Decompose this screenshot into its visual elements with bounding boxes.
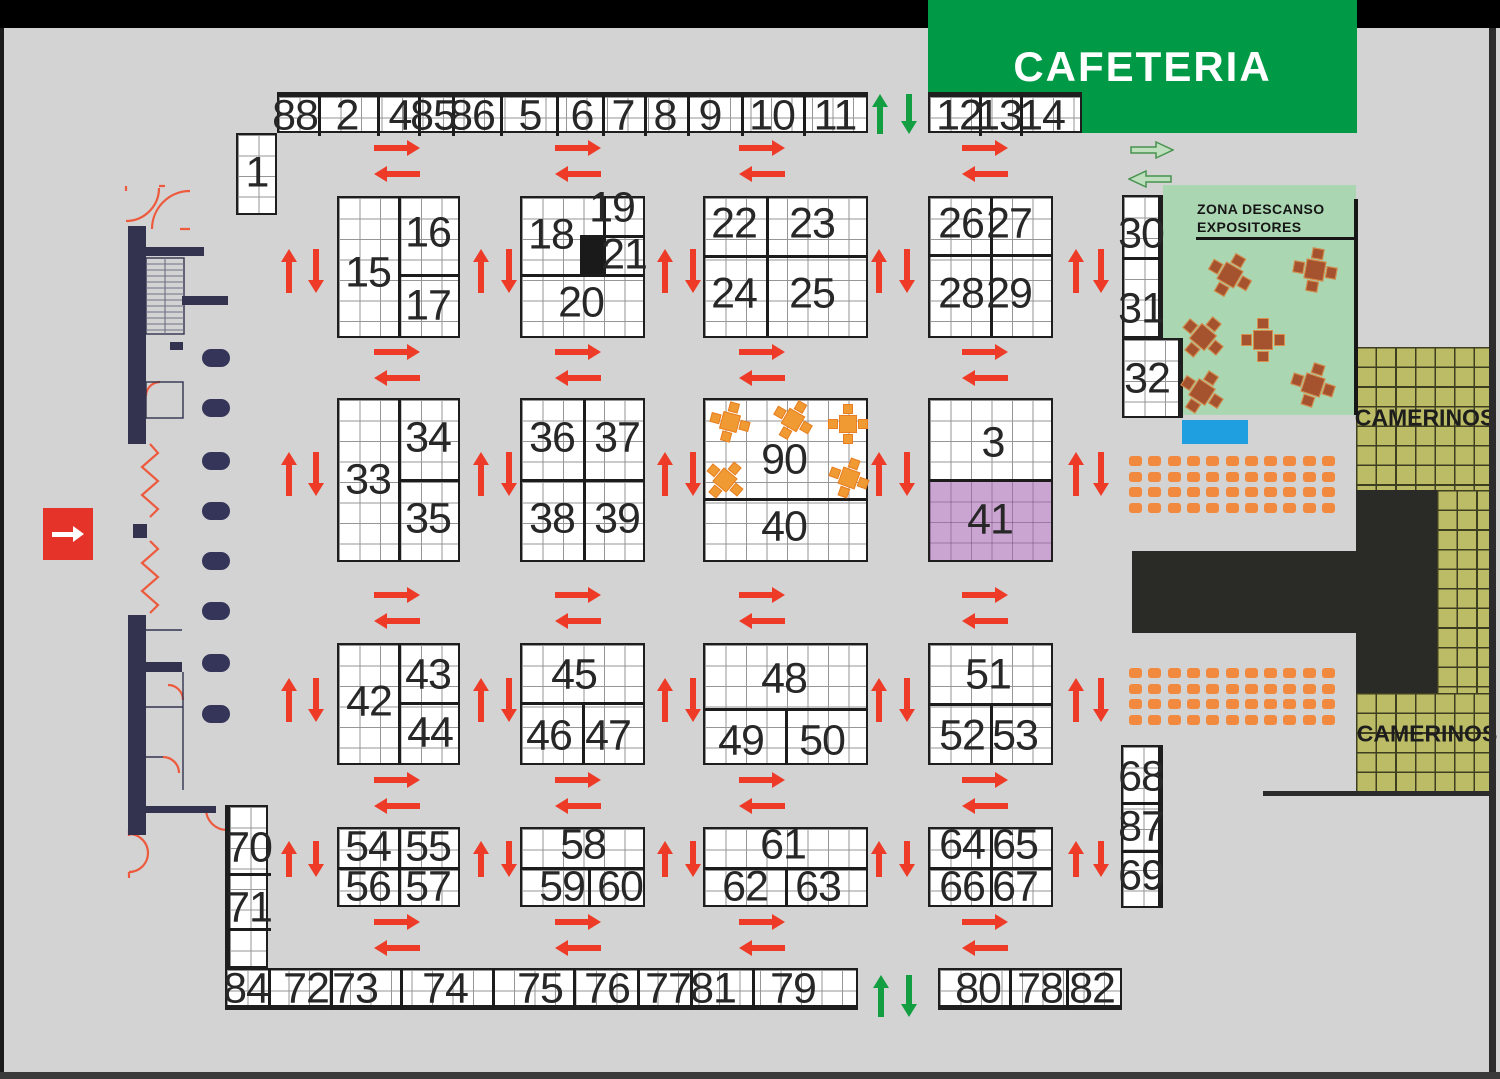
arrow-shaft [690,841,696,865]
audience-seat [1226,456,1239,466]
strip-70-71-divider [228,873,271,876]
booth-90-table-icon [828,404,868,444]
table-chair [843,404,853,414]
booth-label-36: 36 [529,417,575,460]
booth-label-25: 25 [789,273,835,316]
arrow-head [407,344,420,360]
booth-label-84: 84 [223,968,269,1011]
arrow-head [1068,841,1084,854]
aisle-arrow-down-icon [685,452,702,496]
aisle-arrow-down-icon [308,841,325,877]
arrow-head [407,587,420,603]
booth-label-71: 71 [226,887,272,930]
aisle-arrow-right-icon [739,772,785,789]
audience-seat [1264,668,1277,678]
wall-segment-1 [146,247,204,256]
audience-seat [1264,487,1277,497]
left-border [0,28,4,1079]
booth-label-86: 86 [449,95,495,138]
block-15-16-17-divider [398,274,460,277]
aisle-arrow-down-icon [308,678,325,722]
arrow-head [739,940,752,956]
arrow-head [995,140,1008,156]
booth-label-38: 38 [529,498,575,541]
audience-seat [1206,472,1219,482]
booth-label-22: 22 [711,203,757,246]
arrow-shaft [751,618,785,624]
booth-label-67: 67 [992,866,1038,909]
booth-label-51: 51 [965,654,1011,697]
arrow-shaft [1073,690,1079,722]
audience-seat [1264,684,1277,694]
block-15-16-17-divider [398,196,401,338]
arrow-head [1068,249,1084,262]
arrow-shaft [374,777,408,783]
arrow-shaft [904,841,910,865]
audience-seat [1264,699,1277,709]
audience-seat [1322,487,1335,497]
arrow-shaft [567,171,601,177]
arrow-head [281,678,297,691]
arrow-shaft [878,987,884,1017]
aisle-arrow-left-icon [962,166,1008,183]
aisle-arrow-up-icon [871,249,888,293]
structural-column-1 [202,399,230,417]
booth-label-52: 52 [939,715,985,758]
booth-label-53: 53 [992,715,1038,758]
arrow-shaft [555,349,589,355]
arrow-shaft [567,375,601,381]
strip-70-71: 7071 [225,805,268,968]
aisle-arrow-down-icon [899,678,916,722]
aisle-arrow-left-icon [962,940,1008,957]
aisle-arrow-right-icon [374,587,420,604]
booth-label-15: 15 [345,252,391,295]
audience-seat [1283,472,1296,482]
arrow-head [657,841,673,854]
booth-label-21: 21 [601,234,647,277]
strip-top-right: 121314 [928,92,1082,133]
aisle-arrow-down-icon [685,249,702,293]
audience-seat [1148,503,1161,513]
arrow-shaft [506,249,512,281]
booth-label-2: 2 [336,95,359,138]
booth-label-35: 35 [405,498,451,541]
table-chair [720,430,733,443]
strip-bottom-left-divider [752,968,755,1010]
strip-30-31: 3031 [1122,195,1163,338]
aisle-arrow-left-icon [374,940,420,957]
arrow-head [962,940,975,956]
arrow-shaft [751,171,785,177]
arrow-head [374,613,387,629]
aisle-arrow-up-icon [1068,452,1085,496]
cafeteria-flow-arrow-left-icon [1128,169,1172,189]
booth-label-68: 68 [1118,756,1164,799]
wall-segment-7 [146,806,216,813]
entrance-arrow-icon [52,526,84,543]
arrow-head [872,94,888,107]
arrow-head [1093,864,1109,877]
audience-seat [1187,699,1200,709]
audience-seat [1283,715,1296,725]
strip-bottom-left-divider [637,968,640,1010]
arrow-shaft [1098,678,1104,710]
rest-area-table-icon [1241,318,1285,362]
bottom-border [0,1072,1500,1079]
booth-label-82: 82 [1069,968,1115,1011]
arrow-head [899,864,915,877]
aisle-arrow-right-icon [962,344,1008,361]
strip-bottom-left-divider [400,968,403,1010]
arrow-head [473,841,489,854]
arrow-head [407,140,420,156]
arrow-head [374,166,387,182]
audience-seat [1245,699,1258,709]
strip-top-left-divider [500,95,503,136]
arrow-head [962,798,975,814]
audience-seat [1148,456,1161,466]
arrow-shaft [1098,841,1104,865]
strip-top-left-divider [377,95,380,136]
table-chair [843,434,853,444]
block-33-34-35-divider [398,479,460,482]
block-18-19-20-21-fill-0 [580,235,603,274]
arrow-shaft [751,945,785,951]
audience-seat [1129,503,1142,513]
aisle-arrow-up-icon [657,452,674,496]
arrow-head [501,864,517,877]
arrow-shaft [751,803,785,809]
strip-top-left-divider [602,95,605,136]
audience-seat [1322,472,1335,482]
arrow-head [899,280,915,293]
arrow-head [555,166,568,182]
block-26-27-28-29-divider [928,254,1053,257]
audience-seat [1322,503,1335,513]
aisle-arrow-up-icon [871,841,888,877]
table-chair [727,401,740,414]
aisle-arrow-left-icon [555,798,601,815]
audience-seat [1245,684,1258,694]
table-chair [1311,247,1324,260]
arrow-shaft [1073,853,1079,877]
table-top [1253,330,1272,349]
audience-seat [1264,456,1277,466]
arrow-head [555,798,568,814]
aisle-arrow-left-icon [555,613,601,630]
booth-label-14: 14 [1019,95,1065,138]
aisle-arrow-up-icon [281,249,298,293]
booth-label-87: 87 [1118,806,1164,849]
table-chair [1274,334,1285,345]
block-22-23-24-25-divider [766,196,769,338]
arrow-shaft [286,690,292,722]
aisle-arrow-up-icon [871,678,888,722]
table-top [839,415,857,433]
arrow-shaft [877,106,883,134]
booth-label-44: 44 [407,712,453,755]
audience-seat [1303,472,1316,482]
audience-seat [1129,668,1142,678]
arrow-shaft [739,145,773,151]
audience-seat [1245,472,1258,482]
audience-seat [1168,668,1181,678]
arrow-shaft [690,678,696,710]
right-border [1489,28,1496,1079]
block-61-62-63: 616263 [703,827,868,907]
aisle-arrow-up-icon [657,249,674,293]
booth-label-43: 43 [405,654,451,697]
audience-seat [1264,715,1277,725]
booth-label-80: 80 [955,968,1001,1011]
aisle-arrow-right-icon [555,772,601,789]
audience-seat [1168,472,1181,482]
block-58-59-60: 585960 [520,827,645,907]
audience-seat [1148,684,1161,694]
arrow-head [588,140,601,156]
booth-label-59: 59 [539,866,585,909]
audience-seat [1264,503,1277,513]
audience-seat [1226,699,1239,709]
aisle-arrow-down-icon [501,678,518,722]
audience-seat [1187,472,1200,482]
arrow-head [374,798,387,814]
audience-seat [1129,684,1142,694]
arrow-shaft [974,803,1008,809]
audience-seat [1226,715,1239,725]
booth-label-63: 63 [795,866,841,909]
booth-label-31: 31 [1118,288,1164,331]
structural-column-2 [202,452,230,470]
arrow-shaft [567,945,601,951]
arrow-shaft [962,145,996,151]
aisle-arrow-left-icon [962,798,1008,815]
wall-segment-5 [146,662,182,672]
aisle-arrow-right-icon [555,140,601,157]
audience-seat [1245,715,1258,725]
audience-seat [1187,456,1200,466]
table-chair [1306,279,1319,292]
arrow-head [588,772,601,788]
booth-label-81: 81 [690,968,736,1011]
arrow-head [962,613,975,629]
booth-label-64: 64 [939,824,985,867]
arrow-shaft [374,592,408,598]
arrow-head [281,841,297,854]
structural-column-5 [202,602,230,620]
aisle-arrow-left-icon [739,940,785,957]
block-45-46-47: 454647 [520,643,645,765]
arrow-head [901,1004,917,1017]
block-42-43-44-divider [398,702,460,705]
arrow-shaft [962,919,996,925]
booth-label-42: 42 [346,681,392,724]
aisle-arrow-down-icon [1093,678,1110,722]
arrow-head [739,370,752,386]
structural-column-6 [202,654,230,672]
audience-seat [1168,503,1181,513]
booth-label-34: 34 [405,417,451,460]
arrow-head [1068,678,1084,691]
audience-seat [1129,472,1142,482]
block-48-49-50: 484950 [703,643,868,765]
block-33-34-35: 333435 [337,398,460,562]
booth-1: 1 [236,133,277,215]
aisle-arrow-down-icon [685,841,702,877]
audience-seat [1129,699,1142,709]
arrow-shaft [904,249,910,281]
booth-label-69: 69 [1118,855,1164,898]
booth-label-40: 40 [761,506,807,549]
aisle-arrow-left-icon [739,166,785,183]
aisle-arrow-right-icon [374,140,420,157]
arrow-head [772,140,785,156]
arrow-head [374,370,387,386]
booth-label-66: 66 [939,866,985,909]
audience-seat [1187,668,1200,678]
arrow-head [407,772,420,788]
arrow-shaft [1098,249,1104,281]
arrow-head [374,940,387,956]
exit-arrow-down-icon [901,94,918,134]
floor-plan-canvas: CAFETERIA CAMERINOS CAMERINOS ZONA DESCA… [0,0,1500,1079]
booth-label-60: 60 [597,866,643,909]
arrow-head [657,678,673,691]
block-61-62-63-divider [785,867,788,907]
booth-label-65: 65 [992,824,1038,867]
arrow-shaft [313,678,319,710]
audience-seat [1322,456,1335,466]
booth-label-78: 78 [1017,968,1063,1011]
audience-seat [1283,668,1296,678]
aisle-arrow-right-icon [739,587,785,604]
arrow-shaft [962,592,996,598]
arrow-head [995,914,1008,930]
booth-label-17: 17 [405,285,451,328]
audience-seat [1206,715,1219,725]
audience-seat [1129,715,1142,725]
aisle-arrow-right-icon [962,772,1008,789]
arrow-head [962,370,975,386]
aisle-arrow-down-icon [501,249,518,293]
structural-column-7 [202,705,230,723]
aisle-arrow-left-icon [739,370,785,387]
audience-seat [1168,456,1181,466]
booth-label-58: 58 [560,824,606,867]
audience-seat [1283,699,1296,709]
block-3-41: 341 [928,398,1053,562]
aisle-arrow-down-icon [308,452,325,496]
block-36-37-38-39-divider [520,479,645,482]
arrow-head [501,709,517,722]
aisle-arrow-up-icon [281,678,298,722]
aisle-arrow-left-icon [374,370,420,387]
arrow-head [308,483,324,496]
booth-label-8: 8 [654,95,677,138]
booth-label-76: 76 [584,968,630,1011]
wall-segment-3 [170,342,183,350]
aisle-arrow-up-icon [473,452,490,496]
arrow-shaft [478,853,484,877]
arrow-head [873,975,889,988]
arrow-head [871,249,887,262]
aisle-arrow-right-icon [555,344,601,361]
arrow-head [1093,483,1109,496]
arrow-shaft [506,678,512,710]
booth-label-18: 18 [528,214,574,257]
stairs-and-rooms-outline [146,258,184,790]
audience-seat [1187,487,1200,497]
arrow-shaft [876,853,882,877]
arrow-head [473,452,489,465]
arrow-shaft [904,678,910,710]
booth-32: 32 [1122,338,1183,418]
arrow-head [772,772,785,788]
arrow-head [899,483,915,496]
arrow-head [739,166,752,182]
aisle-arrow-up-icon [1068,249,1085,293]
table-chair [1257,351,1268,362]
aisle-arrow-left-icon [555,370,601,387]
arrow-shaft [506,841,512,865]
booth-label-37: 37 [594,417,640,460]
arrow-head [685,709,701,722]
arrow-shaft [374,349,408,355]
arrow-head [308,280,324,293]
arrow-head [281,452,297,465]
table-chair [1292,261,1305,274]
arrow-head [555,613,568,629]
table-chair [1257,318,1268,329]
booth-label-29: 29 [986,273,1032,316]
audience-seat [1168,684,1181,694]
arrow-shaft [739,777,773,783]
arrow-shaft [313,249,319,281]
strip-top-left-divider [803,95,806,136]
arrow-shaft [478,464,484,496]
wall-segment-2 [182,296,228,305]
arrow-shaft [555,592,589,598]
table-chair [1241,334,1252,345]
arrow-shaft [1098,452,1104,484]
audience-seat [1168,715,1181,725]
booth-label-62: 62 [722,866,768,909]
booth-label-70: 70 [226,827,272,870]
audience-seat [1168,699,1181,709]
booth-label-6: 6 [571,95,594,138]
arrow-head [281,249,297,262]
block-18-19-20-21: 18192120 [520,196,645,338]
booth-label-45: 45 [551,654,597,697]
exit-arrow-down-icon [901,975,918,1017]
arrow-shaft [962,349,996,355]
strip-top-left-divider [741,95,744,136]
audience-seat [1187,684,1200,694]
block-26-27-28-29: 26272829 [928,196,1053,338]
booth-label-4: 4 [389,95,412,138]
rest-area-table-icon [1290,245,1341,296]
audience-seat [1322,668,1335,678]
aisle-arrow-down-icon [1093,249,1110,293]
arrow-head [407,914,420,930]
arrow-shaft [751,375,785,381]
arrow-shaft [313,452,319,484]
aisle-arrow-right-icon [374,344,420,361]
audience-seat [1206,456,1219,466]
block-22-23-24-25-divider [703,255,868,258]
arrow-head [657,452,673,465]
